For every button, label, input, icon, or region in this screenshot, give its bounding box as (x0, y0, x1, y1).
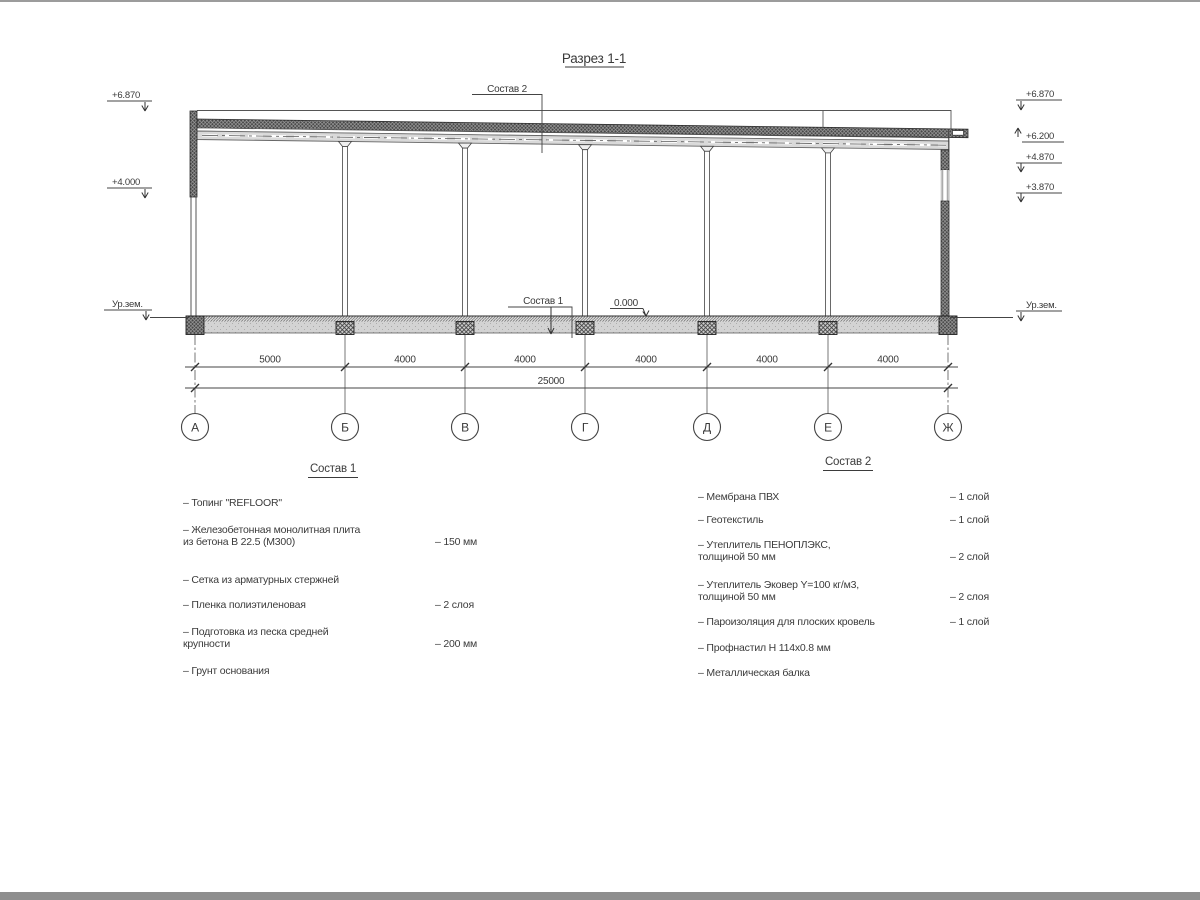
elevation-mark: +4.000 (107, 177, 152, 198)
footing (576, 322, 594, 335)
dim-bay-3: 4000 (514, 355, 536, 366)
svg-text:Ж: Ж (943, 421, 954, 435)
svg-text:Ур.зем.: Ур.зем. (112, 299, 143, 310)
item-text: – Геотекстиль (698, 515, 763, 527)
list-item: – Железобетонная монолитная плита из бет… (183, 525, 483, 548)
svg-text:+6.870: +6.870 (1026, 89, 1054, 100)
column (822, 148, 835, 322)
list-item: – Подготовка из песка средней крупности–… (183, 627, 483, 650)
column (339, 142, 352, 323)
item-text: – Пароизоляция для плоских кровель (698, 617, 875, 629)
drawing-sheet: Разрез 1-1 (0, 0, 1200, 900)
elevation-mark: +4.870 (1016, 152, 1062, 172)
elevation-mark: Ур.зем. (104, 299, 152, 320)
axis-circle: Б (332, 414, 359, 441)
svg-text:Состав 2: Состав 2 (487, 84, 528, 95)
roof-edge-detail (953, 131, 964, 136)
dim-bay-6: 4000 (877, 355, 899, 366)
footing (698, 322, 716, 335)
list-item: – Профнастил Н 114х0.8 мм (698, 643, 998, 655)
item-text: – Подготовка из песка средней крупности (183, 627, 328, 650)
svg-text:Состав 1: Состав 1 (523, 296, 564, 307)
list-item: – Пароизоляция для плоских кровель– 1 сл… (698, 617, 998, 629)
list-item: – Утеплитель Эковер Y=100 кг/м3, толщино… (698, 580, 998, 603)
svg-text:+4.000: +4.000 (112, 177, 140, 188)
sostav1-title: Состав 1 (308, 464, 358, 478)
item-value: – 150 мм (435, 537, 477, 549)
list-item: – Утеплитель ПЕНОПЛЭКС, толщиной 50 мм– … (698, 540, 998, 563)
axis-circle: А (182, 414, 209, 441)
axis-circles: А Б В Г Д Е Ж (182, 414, 962, 441)
item-text: – Мембрана ПВХ (698, 492, 779, 504)
zero-level-mark: 0.000 (610, 298, 649, 316)
dimension-line-bays: 5000 4000 4000 4000 4000 4000 (185, 355, 958, 372)
right-wall (941, 129, 949, 317)
item-text: – Утеплитель Эковер Y=100 кг/м3, толщино… (698, 580, 859, 603)
list-item: – Геотекстиль– 1 слой (698, 515, 998, 527)
axis-circle: В (452, 414, 479, 441)
dim-bay-4: 4000 (635, 355, 657, 366)
dimension-line-total: 25000 (185, 376, 958, 392)
svg-text:0.000: 0.000 (614, 298, 639, 309)
svg-text:+6.200: +6.200 (1026, 131, 1054, 142)
page-bottom-border (0, 892, 1200, 900)
elevation-mark: +6.870 (107, 90, 152, 111)
dim-bay-5: 4000 (756, 355, 778, 366)
item-value: – 1 слой (950, 492, 989, 504)
svg-text:А: А (191, 421, 199, 435)
dim-bay-2: 4000 (394, 355, 416, 366)
svg-text:+3.870: +3.870 (1026, 182, 1054, 193)
sostav2-list: Состав 2 – Мембрана ПВХ– 1 слой – Геотек… (698, 457, 998, 471)
axis-lines (195, 335, 948, 414)
floor-slab (186, 316, 957, 335)
svg-text:Е: Е (824, 421, 832, 435)
item-value: – 2 слой (950, 552, 989, 564)
item-text: – Железобетонная монолитная плита из бет… (183, 525, 360, 548)
sostav2-title: Состав 2 (823, 457, 873, 471)
svg-text:Г: Г (582, 421, 589, 435)
footing (336, 322, 354, 335)
footing (819, 322, 837, 335)
page-top-border (0, 0, 1200, 2)
item-value: – 1 слой (950, 617, 989, 629)
footing (456, 322, 474, 335)
svg-text:+6.870: +6.870 (112, 90, 140, 101)
item-value: – 200 мм (435, 639, 477, 651)
axis-circle: Ж (935, 414, 962, 441)
column (701, 146, 714, 322)
item-text: – Грунт основания (183, 666, 269, 678)
item-value: – 2 слоя (950, 592, 989, 604)
item-value: – 2 слоя (435, 600, 474, 612)
item-text: – Утеплитель ПЕНОПЛЭКС, толщиной 50 мм (698, 540, 831, 563)
section-drawing: Разрез 1-1 (0, 0, 1200, 900)
dim-bay-1: 5000 (259, 355, 281, 366)
elevation-mark: Ур.зем. (1016, 300, 1062, 321)
axis-circle: Е (815, 414, 842, 441)
item-text: – Сетка из арматурных стержней (183, 575, 339, 587)
svg-text:В: В (461, 421, 469, 435)
elevation-marks-left: +6.870 +4.000 Ур.зем. (104, 90, 152, 320)
item-text: – Металлическая балка (698, 668, 810, 680)
svg-text:Д: Д (703, 421, 711, 435)
footing (939, 316, 957, 335)
left-wall (190, 111, 197, 316)
svg-text:+4.870: +4.870 (1026, 152, 1054, 163)
list-item: – Мембрана ПВХ– 1 слой (698, 492, 998, 504)
footing (186, 316, 204, 335)
elevation-mark: +6.870 (1016, 89, 1062, 110)
axis-circle: Г (572, 414, 599, 441)
svg-text:Б: Б (341, 421, 349, 435)
item-text: – Пленка полиэтиленовая (183, 600, 306, 612)
svg-text:Ур.зем.: Ур.зем. (1026, 300, 1057, 311)
page-title-text: Разрез 1-1 (562, 51, 626, 66)
item-value: – 1 слой (950, 515, 989, 527)
item-text: – Топинг "REFLOOR" (183, 498, 282, 510)
elevation-marks-right: +6.870 +6.200 +4.870 +3.870 Ур.зем. (1015, 89, 1064, 321)
floor-topping (190, 316, 949, 322)
wall-window-opening (941, 170, 948, 201)
sostav1-list: Состав 1 – Топинг "REFLOOR" – Железобето… (183, 464, 483, 478)
list-item: – Пленка полиэтиленовая– 2 слоя (183, 600, 483, 612)
page-title: Разрез 1-1 (562, 51, 626, 67)
list-item: – Металлическая балка (698, 668, 998, 680)
dim-total: 25000 (538, 376, 565, 387)
list-item: – Сетка из арматурных стержней (183, 575, 483, 587)
elevation-mark: +6.200 (1015, 128, 1064, 142)
list-item: – Топинг "REFLOOR" (183, 498, 483, 510)
columns (339, 142, 835, 323)
column (459, 143, 472, 322)
list-item: – Грунт основания (183, 666, 483, 678)
item-text: – Профнастил Н 114х0.8 мм (698, 643, 831, 655)
column (579, 145, 592, 322)
elevation-mark: +3.870 (1016, 182, 1062, 202)
axis-circle: Д (694, 414, 721, 441)
